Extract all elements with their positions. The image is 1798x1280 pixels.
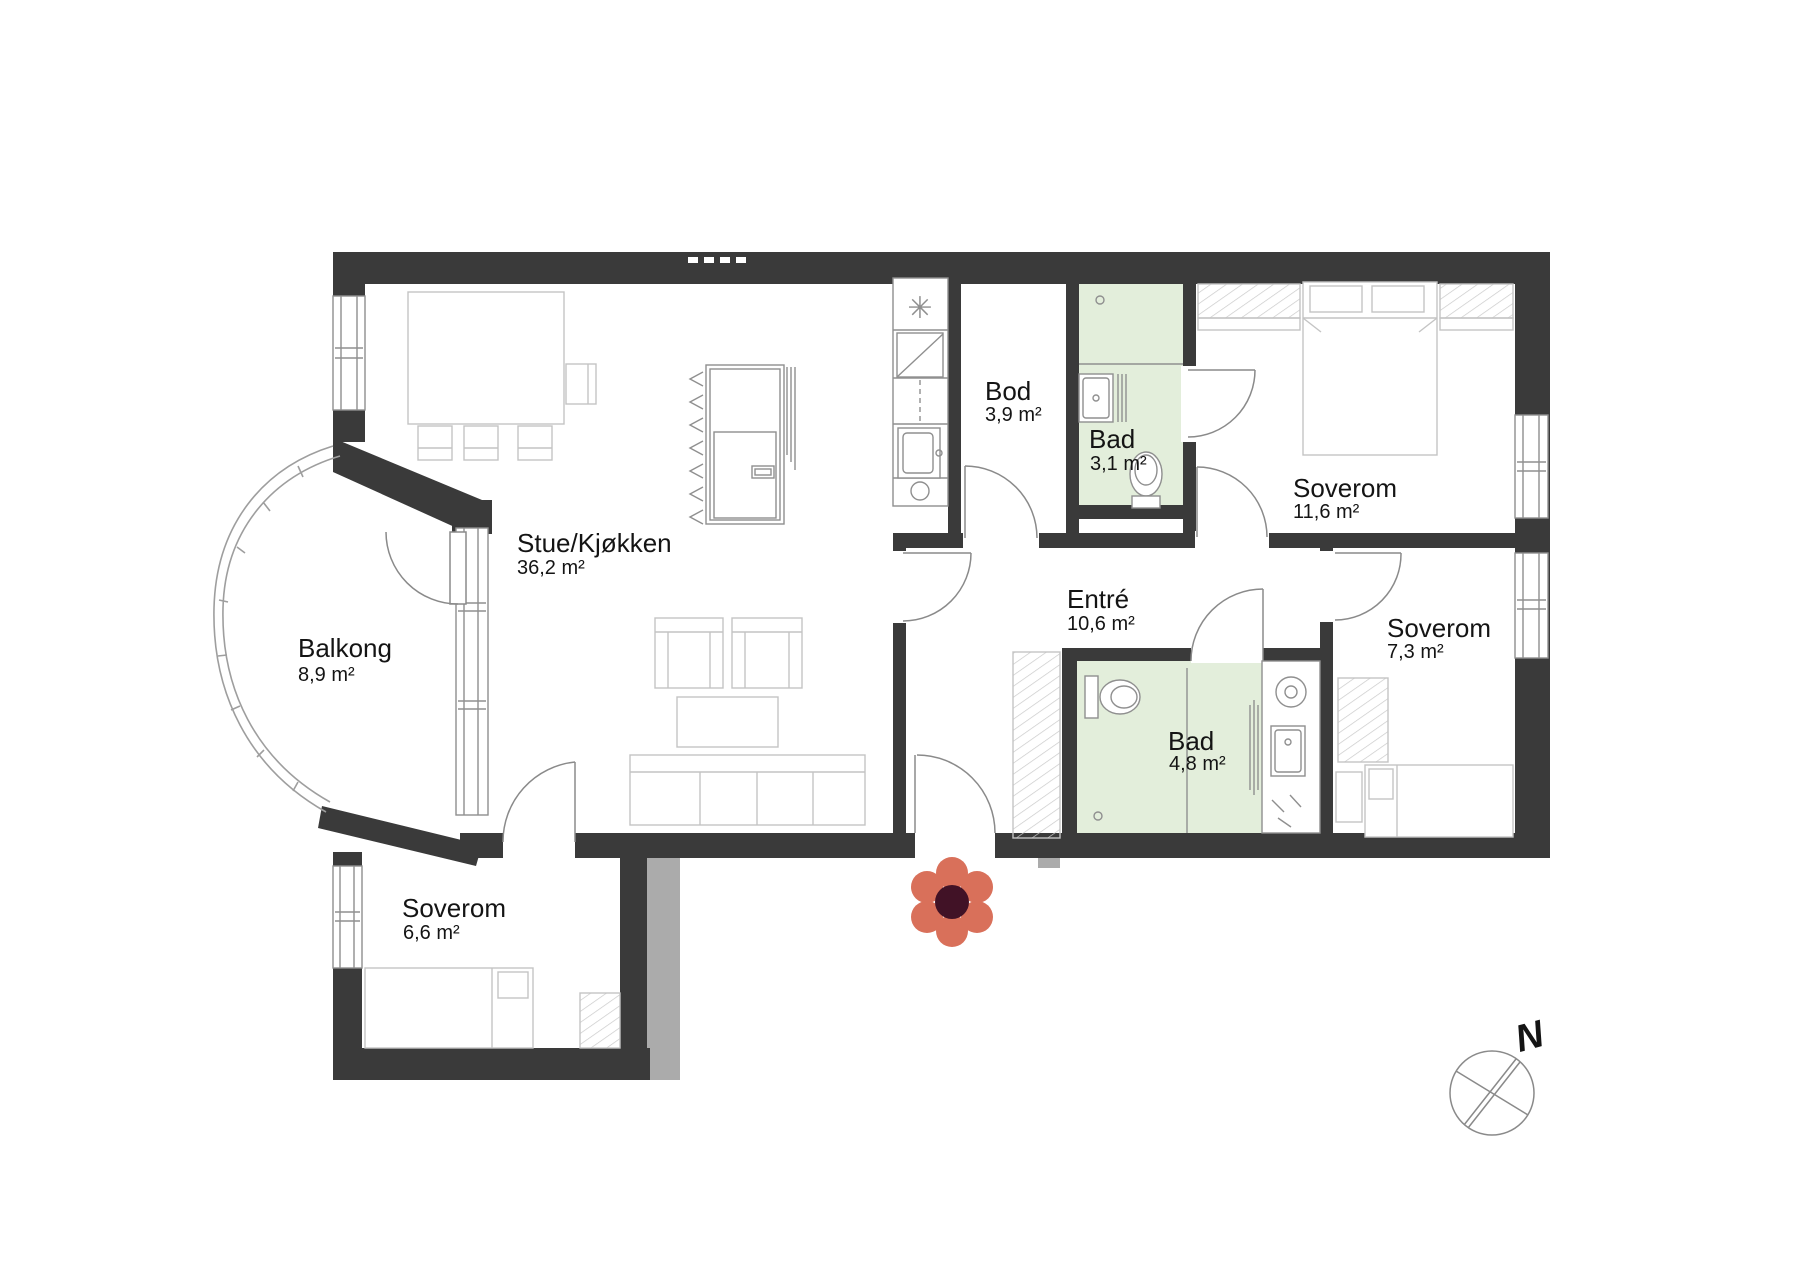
wardrobe-icon <box>1013 652 1060 838</box>
wall-bad1-bottom <box>1066 505 1196 519</box>
neighbor-wall-right-of-soverom3 <box>647 858 680 1048</box>
wardrobe-icon <box>1198 284 1300 318</box>
wall-soverom3-right <box>620 858 647 1048</box>
opening-soverom2-door <box>1318 551 1335 622</box>
wall-joint-tick <box>704 257 714 263</box>
bathroom-sink-icon <box>1079 374 1113 422</box>
wall-joint-tick <box>736 257 746 263</box>
wall-kitchen-bod <box>948 277 961 533</box>
room-label-stue-kjokken: Stue/Kjøkken <box>517 528 672 558</box>
window-soverom2-right <box>1515 553 1548 658</box>
wall-bod-bad1 <box>1066 277 1079 533</box>
room-area-bod: 3,9 m² <box>985 404 1042 426</box>
bathroom-sink-icon <box>1271 726 1305 776</box>
double-bed-icon <box>1303 282 1437 455</box>
room-area-stue-kjokken: 36,2 m² <box>517 557 585 579</box>
wardrobe-icon <box>1338 678 1388 762</box>
window-stue-left <box>333 296 365 410</box>
room-area-soverom-1: 11,6 m² <box>1293 501 1360 523</box>
room-area-balkong: 8,9 m² <box>298 664 355 686</box>
room-label-bad-2: Bad <box>1168 726 1214 756</box>
opening-soverom3-door <box>503 831 575 860</box>
wall-joint-tick <box>720 257 730 263</box>
room-area-bad-2: 4,8 m² <box>1169 753 1226 775</box>
window-soverom3-left <box>333 866 362 968</box>
dining-table <box>408 292 564 424</box>
room-label-balkong: Balkong <box>298 633 392 663</box>
neighbor-wall-corner <box>650 1048 680 1080</box>
single-bed-icon <box>1365 765 1513 837</box>
room-label-soverom-1: Soverom <box>1293 473 1397 503</box>
window-soverom1-right <box>1515 415 1548 518</box>
wardrobe-icon <box>1440 284 1513 318</box>
room-area-soverom-3: 6,6 m² <box>403 922 460 944</box>
room-label-bod: Bod <box>985 376 1031 406</box>
wall-joint-tick <box>688 257 698 263</box>
wall-bad2-left <box>1062 648 1077 833</box>
room-area-soverom-2: 7,3 m² <box>1387 641 1444 663</box>
toilet-icon <box>1085 676 1098 718</box>
flower-center <box>935 885 969 919</box>
room-label-entre: Entré <box>1067 584 1129 614</box>
room-area-entre: 10,6 m² <box>1067 613 1135 635</box>
opening-entrance-door <box>915 831 995 860</box>
entre-furniture <box>1013 652 1060 838</box>
neighbor-wall-stub <box>1038 858 1060 868</box>
stove-icon: ✳ <box>907 292 932 325</box>
wall-soverom3-bottom <box>333 1048 650 1080</box>
opening-bod-door <box>963 531 1039 550</box>
kitchen-counter: ✳ <box>893 278 948 506</box>
wardrobe-icon <box>580 993 620 1048</box>
single-bed-icon <box>365 968 533 1048</box>
opening-bad1-door <box>1181 366 1198 442</box>
opening-soverom1-door <box>1195 531 1269 550</box>
floor-plan-page: ✳ <box>0 0 1798 1280</box>
opening-stue-entre-door <box>891 551 908 623</box>
kitchen-island <box>690 365 795 524</box>
sofa-icon <box>630 755 865 825</box>
room-area-bad-1: 3,1 m² <box>1090 453 1147 475</box>
room-label-soverom-2: Soverom <box>1387 613 1491 643</box>
opening-bad2-door <box>1191 646 1263 663</box>
room-label-soverom-3: Soverom <box>402 893 506 923</box>
room-label-bad-1: Bad <box>1089 424 1135 454</box>
floor-plan-drawing: ✳ <box>0 0 1798 1280</box>
